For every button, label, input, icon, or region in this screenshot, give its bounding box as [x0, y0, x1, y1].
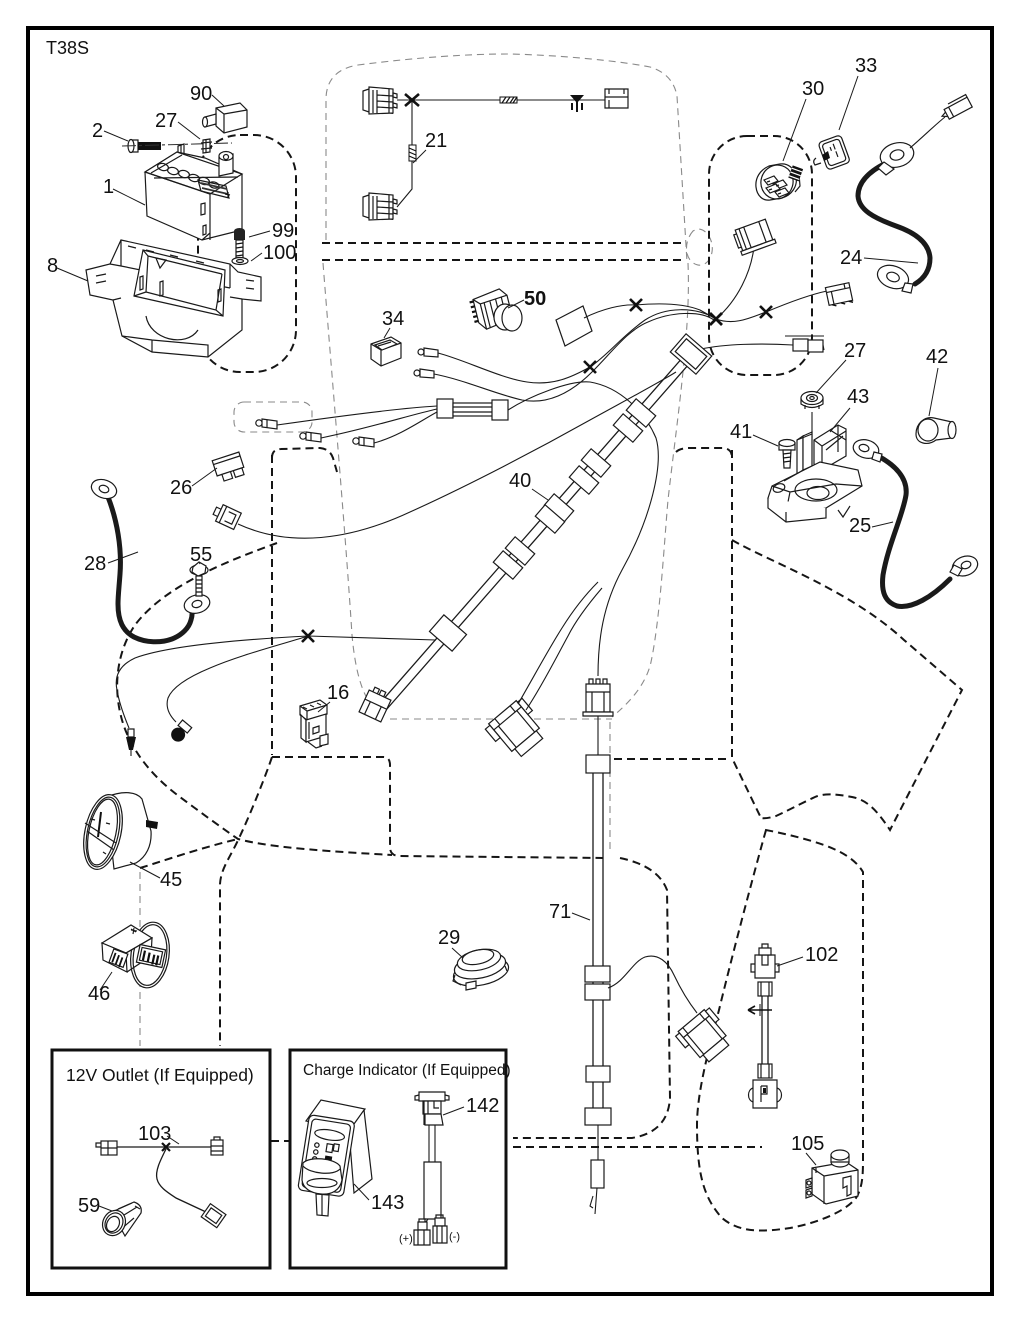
svg-text:T38S: T38S	[46, 38, 89, 58]
svg-text:42: 42	[926, 346, 948, 368]
svg-text:99: 99	[272, 220, 294, 242]
svg-text:55: 55	[190, 544, 212, 566]
svg-text:45: 45	[160, 869, 182, 891]
svg-text:105: 105	[791, 1133, 824, 1155]
svg-text:90: 90	[190, 83, 212, 105]
svg-text:143: 143	[371, 1192, 404, 1214]
svg-text:50: 50	[524, 288, 546, 310]
svg-text:33: 33	[855, 55, 877, 77]
svg-text:34: 34	[382, 308, 404, 330]
svg-text:41: 41	[730, 421, 752, 443]
svg-text:24: 24	[840, 247, 862, 269]
svg-text:40: 40	[509, 470, 531, 492]
svg-text:21: 21	[425, 130, 447, 152]
svg-text:142: 142	[466, 1095, 499, 1117]
svg-text:29: 29	[438, 927, 460, 949]
svg-text:26: 26	[170, 477, 192, 499]
svg-text:Charge Indicator (If Equipped): Charge Indicator (If Equipped)	[303, 1062, 511, 1079]
svg-text:(+): (+)	[399, 1233, 413, 1245]
svg-text:28: 28	[84, 553, 106, 575]
svg-text:27: 27	[155, 110, 177, 132]
svg-text:102: 102	[805, 944, 838, 966]
svg-text:103: 103	[138, 1123, 171, 1145]
svg-text:59: 59	[78, 1195, 100, 1217]
svg-text:46: 46	[88, 983, 110, 1005]
svg-text:30: 30	[802, 78, 824, 100]
svg-text:27: 27	[844, 340, 866, 362]
svg-text:2: 2	[92, 120, 103, 142]
svg-text:(-): (-)	[449, 1231, 460, 1243]
svg-text:25: 25	[849, 515, 871, 537]
svg-text:8: 8	[47, 255, 58, 277]
svg-text:16: 16	[327, 682, 349, 704]
svg-text:71: 71	[549, 901, 571, 923]
svg-text:12V Outlet (If Equipped): 12V Outlet (If Equipped)	[66, 1065, 254, 1085]
svg-text:1: 1	[103, 176, 114, 198]
svg-text:43: 43	[847, 386, 869, 408]
svg-text:100: 100	[263, 242, 296, 264]
